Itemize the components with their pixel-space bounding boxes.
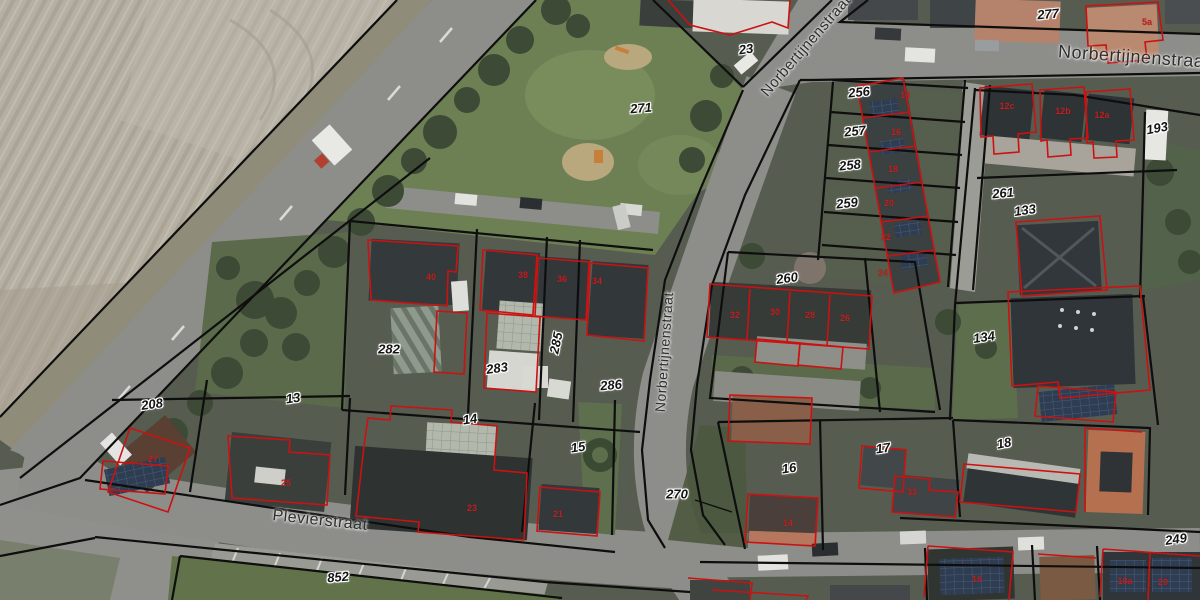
building-282 [368, 239, 459, 306]
camper-van [1144, 109, 1169, 160]
playground-equipment [594, 150, 603, 163]
sand-pit [604, 44, 652, 70]
building-134 [1010, 294, 1135, 388]
aerial-cadastral-map[interactable]: NorbertijnenstraatNorbertijnenstraatNorb… [0, 0, 1200, 600]
house-12b [1040, 90, 1087, 142]
parked-car [451, 280, 469, 311]
aerial-imagery-layer [0, 0, 1200, 600]
row-houses-26-32 [709, 282, 872, 346]
house-33 [892, 474, 959, 517]
playground-sand [562, 143, 614, 181]
parked-car [455, 193, 478, 206]
parked-car [520, 197, 543, 210]
school-building [349, 446, 532, 540]
